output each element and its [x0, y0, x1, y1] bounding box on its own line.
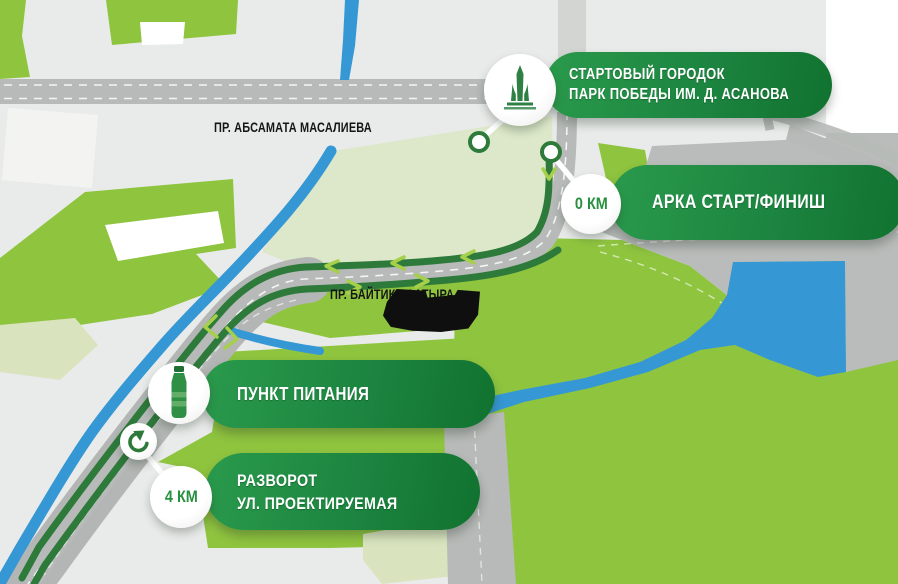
- food-station-label: ПУНКТ ПИТАНИЯ: [202, 360, 495, 428]
- food-station-title: ПУНКТ ПИТАНИЯ: [237, 384, 454, 405]
- turnaround-line1: РАЗВОРОТ: [237, 469, 441, 492]
- km-4-badge: 4 КМ: [150, 466, 212, 528]
- arch-title: АРКА СТАРТ/ФИНИШ: [652, 192, 865, 214]
- start-area-label: СТАРТОВЫЙ ГОРОДОК ПАРК ПОБЕДЫ ИМ. Д. АСА…: [545, 52, 832, 118]
- route-point-ring: [470, 133, 488, 151]
- turnaround-line2: УЛ. ПРОЕКТИРУЕМАЯ: [237, 492, 441, 515]
- street-label-masalieva: ПР. АБСАМАТА МАСАЛИЕВА: [214, 119, 372, 135]
- u-turn-icon: [120, 423, 157, 460]
- arch-label: АРКА СТАРТ/ФИНИШ: [610, 165, 898, 240]
- route-point-ring: [542, 143, 560, 161]
- start-area-line1: СТАРТОВЫЙ ГОРОДОК: [569, 65, 790, 85]
- km-0-text: 0 КМ: [575, 194, 608, 214]
- turnaround-label: РАЗВОРОТ УЛ. ПРОЕКТИРУЕМАЯ: [205, 453, 480, 530]
- monument-icon: [484, 54, 556, 126]
- bottle-icon: [148, 362, 210, 424]
- km-4-text: 4 КМ: [165, 487, 198, 507]
- km-0-badge: 0 КМ: [561, 174, 621, 234]
- race-route-map: ПР. АБСАМАТА МАСАЛИЕВА ПР. БАЙТИК БААТЫР…: [0, 0, 898, 584]
- map-empty-corner: [826, 0, 898, 133]
- food-station-marker: [148, 362, 210, 424]
- start-area-line2: ПАРК ПОБЕДЫ ИМ. Д. АСАНОВА: [569, 85, 790, 105]
- monument-marker: [484, 54, 556, 126]
- turnaround-marker: [120, 423, 157, 460]
